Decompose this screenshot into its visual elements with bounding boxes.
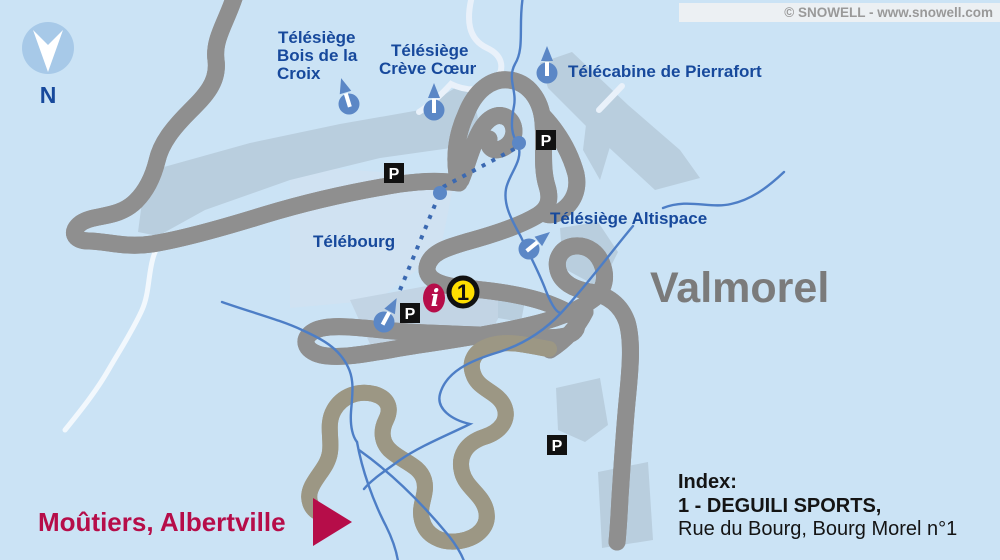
label-lift-creve-line2: Crève Cœur [379, 59, 477, 78]
gondola-station-dot [433, 186, 447, 200]
parking-icon: P [536, 130, 556, 150]
parking-icon: P [384, 163, 404, 183]
svg-text:1: 1 [457, 280, 469, 305]
compass-n-label: N [40, 82, 57, 108]
index-entry-address: Rue du Bourg, Bourg Morel n°1 [678, 518, 957, 540]
svg-text:i: i [431, 285, 440, 312]
map-canvas: P P P P i 1 N Télésiège Bois de la [0, 0, 1000, 560]
svg-text:P: P [541, 133, 552, 150]
resort-map: P P P P i 1 N Télésiège Bois de la [0, 0, 1000, 560]
label-lift-telebourg: Télébourg [313, 232, 395, 251]
label-lift-bois-line1: Télésiège [278, 28, 356, 47]
svg-text:P: P [389, 166, 400, 183]
copyright-text: © SNOWELL - www.snowell.com [784, 5, 993, 20]
parking-icon: P [547, 435, 567, 455]
label-lift-bois-line3: Croix [277, 64, 321, 83]
label-direction: Moûtiers, Albertville [38, 507, 286, 537]
svg-text:P: P [405, 306, 416, 323]
label-lift-bois-line2: Bois de la [277, 46, 358, 65]
parking-icon: P [400, 303, 420, 323]
info-icon: i [423, 284, 445, 313]
label-resort-name: Valmorel [650, 264, 829, 312]
index-title: Index: [678, 471, 737, 493]
copyright-bar: © SNOWELL - www.snowell.com [679, 3, 1000, 22]
shop-1-badge: 1 [449, 278, 477, 306]
label-lift-creve-line1: Télésiège [391, 41, 469, 60]
index-entry-name: 1 - DEGUILI SPORTS, [678, 495, 881, 517]
gondola-station-dot [512, 136, 526, 150]
svg-text:P: P [552, 438, 563, 455]
label-lift-pierrafort: Télécabine de Pierrafort [568, 62, 762, 81]
label-lift-altispace: Télésiège Altispace [550, 209, 707, 228]
